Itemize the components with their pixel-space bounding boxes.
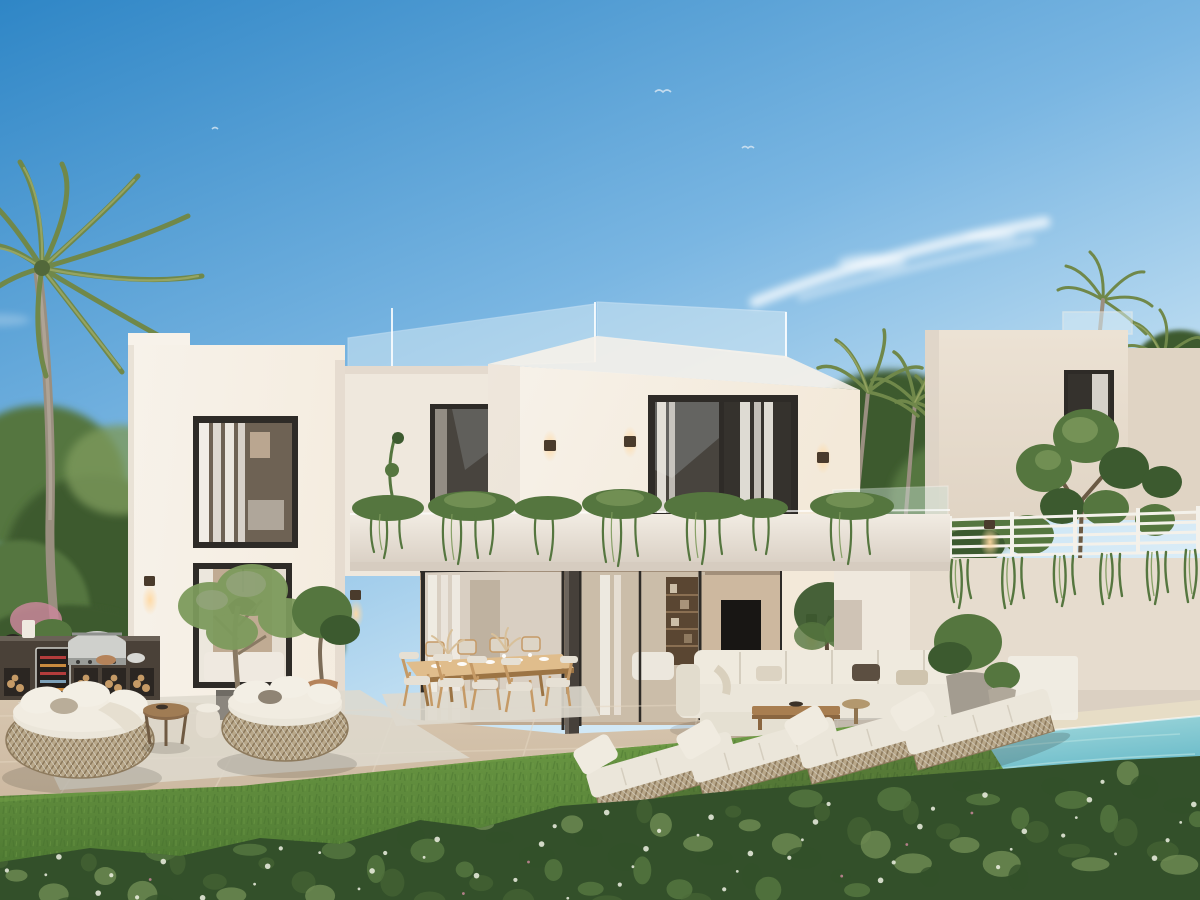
hedge-leaf-clump (950, 837, 980, 853)
hedge-leaf-clump (919, 867, 939, 887)
hedge-flower (1166, 838, 1170, 842)
hedge-leaf-clump (1011, 807, 1029, 829)
hedge-flower (1010, 848, 1013, 851)
hedge-leaf-clump (683, 836, 713, 852)
hedge-flower (434, 837, 440, 843)
wall-sconce (815, 442, 831, 474)
hedge-leaf-clump (1072, 857, 1110, 871)
hedge-flower (736, 870, 739, 873)
hedge-leaf-clump (203, 874, 227, 890)
hedge-leaf-clump (561, 815, 583, 833)
hedge-leaf-clump (844, 883, 870, 897)
hedge-flower (553, 824, 557, 828)
hedge-flower (56, 854, 62, 860)
hedge-leaf-clump (81, 853, 97, 871)
sofa-arm (676, 664, 700, 716)
hedge-flower (462, 892, 465, 895)
hedge-flower (1061, 833, 1065, 837)
hedge-flower (1191, 802, 1197, 808)
tv-screen (721, 600, 761, 657)
hedge-flower (722, 887, 726, 891)
hedge-leaf-clump (953, 780, 981, 792)
hedge-flower (971, 812, 974, 815)
hedge-leaf-clump (636, 799, 652, 823)
hedge-leaf-clump (861, 831, 891, 859)
sofa-pillow (896, 670, 928, 685)
throw-pillow (50, 698, 78, 714)
hedge-flower (539, 841, 545, 847)
hedge-flower (513, 878, 517, 882)
hedge-flower (657, 829, 661, 833)
hedge-flower (618, 883, 622, 887)
hedge-flower (1087, 797, 1093, 803)
hedge-leaf-clump (575, 829, 603, 847)
hedge-leaf-clump (233, 844, 267, 856)
hedge-flower (109, 873, 113, 877)
steel-pot (127, 653, 145, 663)
hedge-flower (527, 861, 530, 864)
hedge-leaf-clump (1025, 821, 1049, 843)
round-daybed (217, 676, 357, 778)
hedge-flower (697, 834, 700, 837)
throw-pillow (258, 690, 282, 704)
hedge-flower (917, 824, 923, 830)
hedge-leaf-clump (633, 856, 651, 884)
hedge-leaf-clump (650, 813, 672, 837)
hedge-leaf-clump (725, 806, 741, 818)
hedge-flower (474, 873, 480, 879)
hedge-leaf-clump (739, 819, 761, 831)
interior-bed (204, 652, 284, 682)
round-daybed (2, 681, 162, 794)
white-canister (22, 620, 35, 638)
hedge-flower (708, 814, 714, 820)
hedge-flower (878, 878, 884, 884)
left-tower (128, 333, 364, 715)
hedge-leaf-clump (1160, 855, 1198, 875)
hedge-leaf-clump (1130, 775, 1158, 799)
render-canvas: Render of a modern two-storey white vill… (0, 0, 1200, 900)
hedge-flower (383, 851, 387, 855)
hedge-leaf-clump (322, 841, 356, 859)
hedge-leaf-clump (380, 869, 404, 897)
hedge-flower (1114, 853, 1117, 856)
hedge-flower (1179, 821, 1182, 824)
hedge-flower (44, 873, 47, 876)
hedge-leaf-clump (903, 801, 919, 825)
hedge-flower (279, 846, 283, 850)
hedge-flower (566, 897, 569, 900)
hedge-flower (787, 856, 791, 860)
hedge-flower (1022, 828, 1028, 834)
hedge-flower (748, 851, 754, 857)
villa-render: Render of a modern two-storey white vill… (0, 0, 1200, 900)
sofa-pillow (852, 664, 880, 681)
hedge-flower (892, 860, 896, 864)
hedge-flower (604, 810, 610, 816)
hedge-leaf-clump (486, 832, 514, 844)
hedge-flower (5, 868, 9, 872)
hedge-flower (643, 846, 649, 852)
wall-sconce (622, 426, 638, 458)
hedge-flower (813, 819, 819, 825)
hedge-flower (149, 878, 152, 881)
hedge-leaf-clump (1055, 791, 1089, 809)
hedge-flower (135, 895, 139, 899)
hedge-flower (369, 868, 375, 874)
hedge-flower (253, 883, 256, 886)
hedge-flower (423, 856, 426, 859)
hedge-flower (265, 863, 271, 869)
hedge-leaf-clump (578, 882, 604, 896)
hedge-leaf-clump (545, 859, 563, 881)
hedge-flower (982, 792, 988, 798)
hedge-leaf-clump (456, 862, 474, 878)
hedge-flower (931, 807, 935, 811)
interior-sofa (632, 652, 674, 680)
wall-sconce (542, 430, 558, 462)
hedge-flower (1100, 780, 1104, 784)
hedge-leaf-clump (1114, 818, 1138, 846)
hedge-leaf-clump (1058, 844, 1090, 858)
hedge-flower (318, 851, 321, 854)
hedge-flower (95, 890, 101, 896)
tower-upper-window (193, 416, 298, 548)
hedge-flower (905, 843, 908, 846)
hedge-flower (1075, 816, 1078, 819)
hedge-leaf-clump (697, 849, 733, 865)
hedge-leaf-clump (936, 823, 960, 839)
hedge-leaf-clump (469, 875, 493, 891)
hedge-leaf-clump (1008, 864, 1028, 890)
interior-art (250, 432, 270, 458)
hedge-flower (358, 887, 361, 890)
hedge-flower (801, 838, 804, 841)
terracotta-bowl (96, 655, 116, 665)
hedge-leaf-clump (411, 839, 445, 863)
hedge-flower (1152, 855, 1158, 861)
hedge-flower (161, 859, 167, 865)
hedge-flower (827, 802, 831, 806)
hedge-flower (996, 865, 1000, 869)
sofa-pillow (756, 666, 782, 681)
bookshelf (666, 577, 698, 665)
hedge-flower (632, 865, 635, 868)
hedge-flower (840, 875, 843, 878)
